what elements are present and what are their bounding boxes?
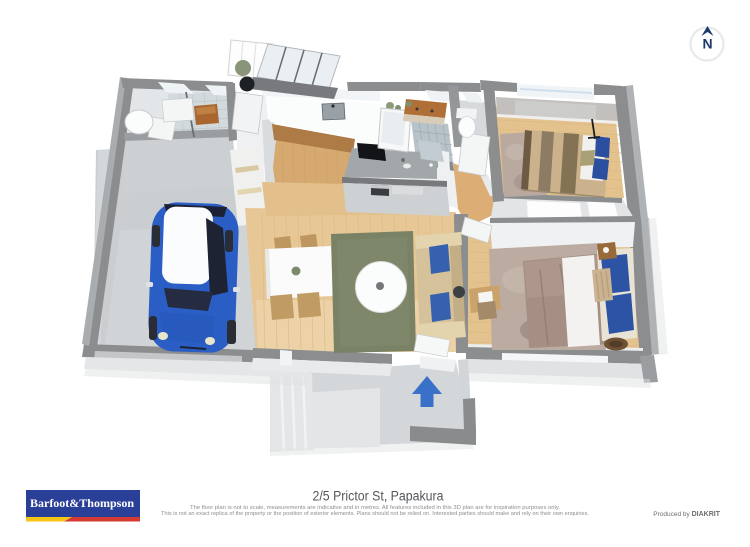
svg-text:This is not an exact replica o: This is not an exact replica of the prop…	[161, 511, 589, 517]
svg-text:2/5 Prictor St, Papakura: 2/5 Prictor St, Papakura	[313, 489, 444, 504]
svg-text:Produced by DIAKRIT: Produced by DIAKRIT	[653, 511, 720, 518]
svg-text:Barfoot&Thompson: Barfoot&Thompson	[30, 496, 134, 510]
svg-text:N: N	[702, 36, 712, 52]
